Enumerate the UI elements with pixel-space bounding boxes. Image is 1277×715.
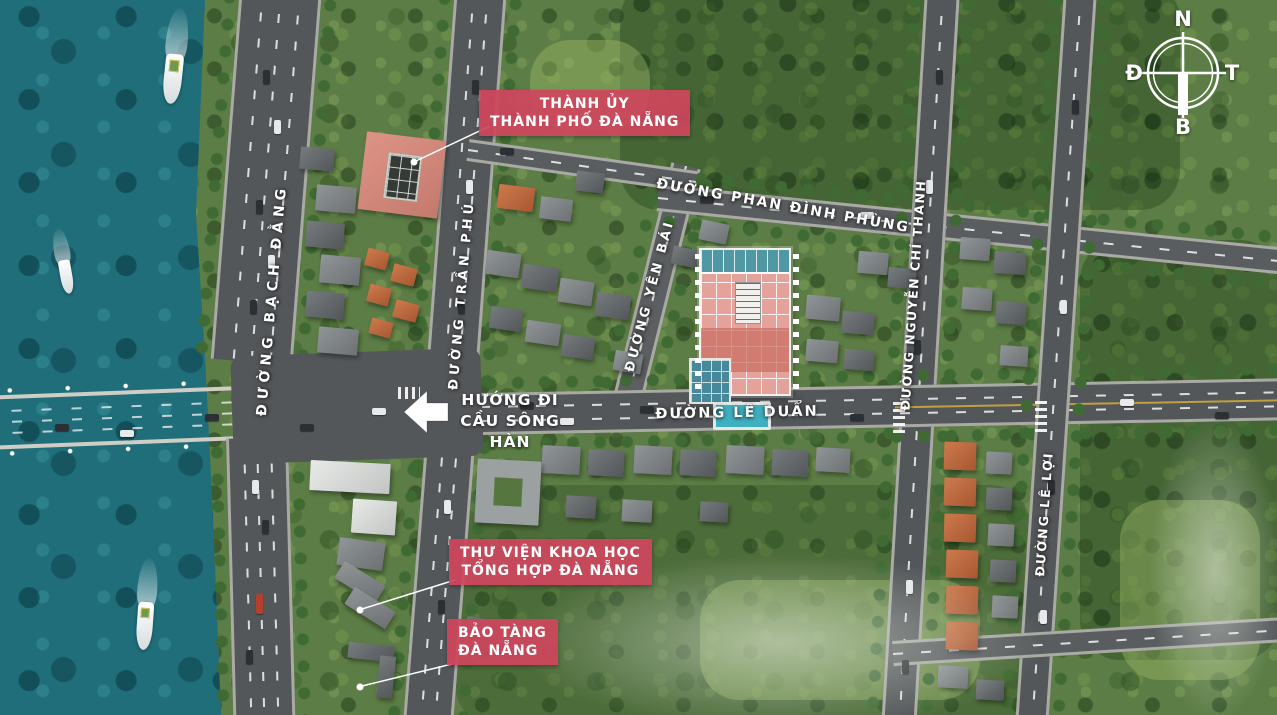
label-library-line1: THƯ VIỆN KHOA HỌC	[460, 544, 641, 562]
building	[815, 447, 850, 473]
building	[525, 320, 562, 347]
building	[305, 220, 345, 249]
lawn-patch	[1120, 500, 1260, 680]
villa	[944, 513, 977, 542]
building	[985, 487, 1012, 510]
bus	[256, 594, 263, 614]
car	[640, 406, 654, 413]
building	[679, 449, 716, 477]
building	[841, 311, 875, 336]
compass-letter-top: N	[1174, 7, 1192, 31]
boat-hull	[58, 259, 76, 295]
label-city-hall: THÀNH ỦY THÀNH PHỐ ĐÀ NẴNG	[479, 90, 690, 136]
villa	[944, 441, 977, 470]
road-bach-dang-south	[226, 437, 295, 715]
label-museum: BẢO TÀNG ĐÀ NẴNG	[447, 619, 558, 665]
label-city-hall-line1: THÀNH ỦY	[490, 95, 679, 113]
car	[246, 650, 253, 664]
car	[120, 430, 134, 437]
car	[55, 424, 69, 431]
building	[961, 287, 992, 311]
building	[319, 254, 361, 285]
car	[1120, 399, 1134, 406]
building	[621, 499, 652, 523]
location-map: THÀNH ỦY THÀNH PHỐ ĐÀ NẴNG THƯ VIỆN KHOA…	[0, 0, 1277, 715]
building	[771, 449, 808, 477]
building	[561, 334, 596, 360]
building	[699, 501, 728, 522]
car	[252, 480, 259, 494]
building	[484, 250, 521, 278]
label-library: THƯ VIỆN KHOA HỌC TỔNG HỢP ĐÀ NẴNG	[449, 539, 652, 585]
building	[594, 292, 631, 320]
project-balconies-left	[695, 254, 701, 390]
building	[587, 449, 624, 477]
label-museum-line2: ĐÀ NẴNG	[458, 642, 547, 660]
courtyard	[493, 477, 522, 506]
villa	[946, 621, 979, 650]
car	[936, 70, 943, 84]
city-hall-building	[358, 131, 447, 218]
car	[263, 70, 270, 84]
car	[850, 414, 864, 421]
direction-sign-line2: CẦU SÔNG HÀN	[448, 411, 572, 453]
compass-letter-left: Đ	[1125, 61, 1143, 85]
building	[489, 306, 524, 332]
car	[906, 580, 913, 594]
building	[299, 147, 335, 172]
villa	[946, 549, 979, 578]
building	[857, 251, 889, 276]
building	[959, 237, 990, 261]
building	[987, 523, 1014, 546]
building	[993, 251, 1026, 275]
direction-sign: HƯỚNG ĐI CẦU SÔNG HÀN	[448, 390, 572, 453]
car	[274, 120, 281, 134]
han-river	[0, 0, 226, 715]
building	[497, 184, 536, 212]
building	[843, 349, 875, 372]
car	[444, 500, 451, 514]
villa	[946, 585, 979, 614]
project-balconies-right	[793, 254, 799, 390]
building	[999, 345, 1028, 367]
building	[975, 679, 1004, 700]
label-library-line2: TỔNG HỢP ĐÀ NẴNG	[460, 562, 641, 580]
building	[305, 290, 345, 319]
boat-deck	[169, 59, 180, 72]
building	[985, 451, 1012, 474]
car	[1215, 412, 1229, 419]
car	[1060, 300, 1067, 314]
car	[438, 600, 445, 614]
building	[937, 665, 968, 689]
building	[575, 170, 605, 193]
building	[995, 301, 1026, 325]
compass-rose: N Đ T B	[1126, 6, 1238, 138]
car	[472, 80, 479, 94]
label-museum-line1: BẢO TÀNG	[458, 624, 547, 642]
label-city-hall-line2: THÀNH PHỐ ĐÀ NẴNG	[490, 113, 679, 131]
boat-deck	[140, 608, 150, 619]
car	[1040, 610, 1047, 624]
crosswalk	[398, 387, 420, 399]
project-core	[735, 282, 761, 324]
street-label-le-duan: ĐƯỜNG LÊ DUẨN	[655, 404, 819, 423]
compass-letter-bottom: B	[1175, 115, 1191, 139]
car	[300, 424, 314, 431]
building	[309, 460, 390, 494]
building	[539, 196, 573, 222]
building	[725, 445, 764, 475]
car	[262, 520, 269, 534]
building	[557, 278, 594, 306]
car	[466, 180, 473, 194]
direction-sign-line1: HƯỚNG ĐI	[448, 390, 572, 411]
courtyard-building	[474, 458, 541, 525]
car	[902, 660, 909, 674]
car	[1072, 100, 1079, 114]
building	[805, 339, 839, 364]
building	[633, 445, 672, 475]
project-top-section	[701, 250, 789, 274]
building	[991, 595, 1018, 618]
crosswalk	[1035, 398, 1047, 432]
building	[565, 495, 596, 519]
building	[521, 264, 560, 293]
building	[351, 499, 397, 536]
car	[256, 200, 263, 214]
building	[317, 326, 359, 355]
building	[989, 559, 1016, 582]
building	[315, 184, 357, 213]
car	[250, 300, 257, 314]
city-hall-courtyard	[383, 152, 422, 202]
villa	[944, 477, 977, 506]
car	[205, 414, 219, 421]
car	[372, 408, 386, 415]
car	[500, 148, 514, 155]
compass-letter-right: T	[1225, 61, 1239, 85]
building	[805, 295, 841, 322]
